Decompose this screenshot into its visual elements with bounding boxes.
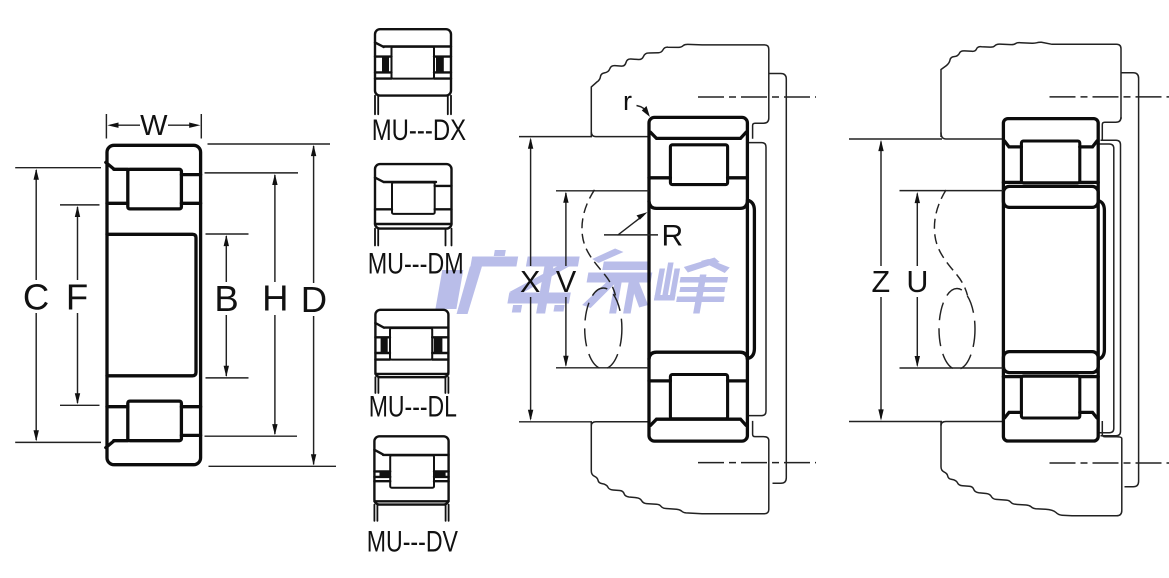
svg-text:MU---DX: MU---DX bbox=[372, 114, 467, 147]
svg-text:X: X bbox=[520, 265, 540, 299]
svg-text:R: R bbox=[662, 220, 684, 253]
svg-text:F: F bbox=[66, 277, 88, 318]
svg-text:D: D bbox=[301, 279, 327, 320]
svg-text:B: B bbox=[214, 278, 238, 319]
svg-text:W: W bbox=[140, 110, 168, 142]
svg-text:V: V bbox=[556, 265, 577, 299]
svg-text:MU---DV: MU---DV bbox=[367, 526, 459, 559]
svg-text:MU---DL: MU---DL bbox=[369, 391, 457, 424]
svg-text:Z: Z bbox=[871, 265, 890, 299]
svg-text:MU---DM: MU---DM bbox=[368, 248, 464, 281]
svg-text:C: C bbox=[23, 277, 49, 318]
svg-text:U: U bbox=[906, 265, 928, 299]
svg-text:H: H bbox=[262, 278, 288, 319]
svg-text:r: r bbox=[623, 86, 632, 116]
